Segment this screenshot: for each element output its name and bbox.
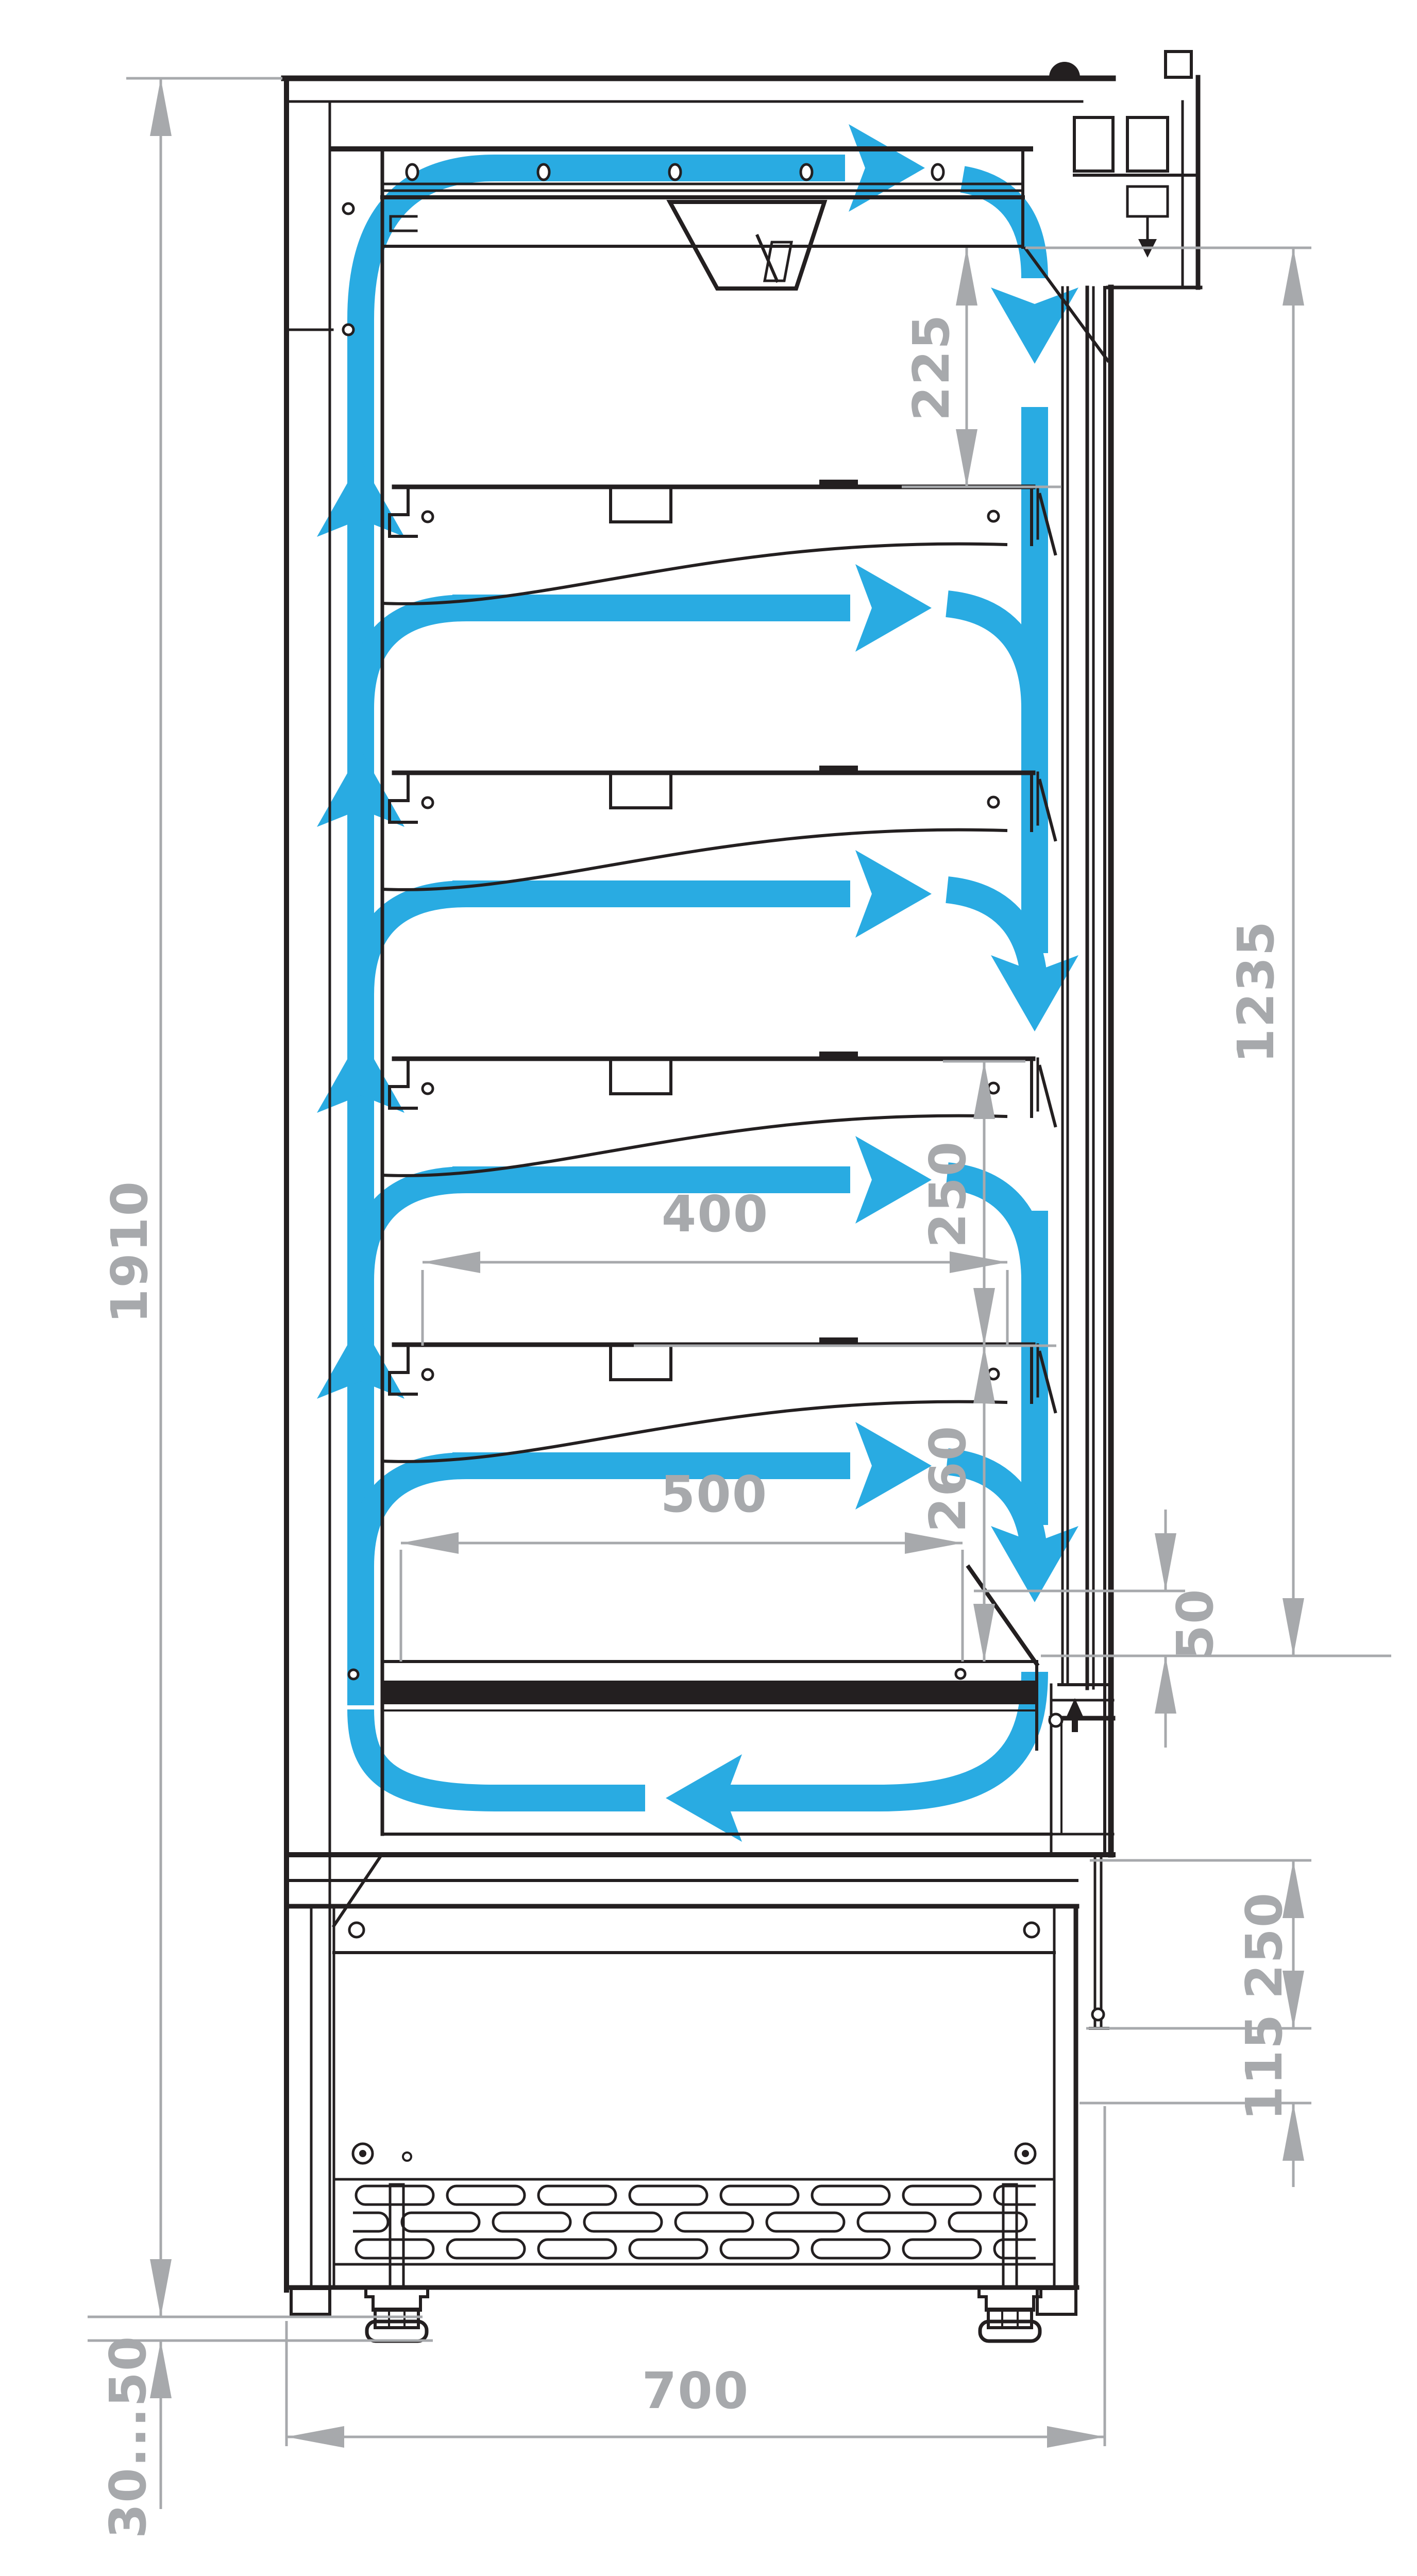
dim-label-foot-range: 30...50 — [99, 2335, 157, 2539]
perforation-hole — [407, 164, 418, 180]
dimension-annotations: 1910 30...50 225 1235 — [88, 78, 1391, 2538]
display-cabinet-cross-section-diagram: 1910 30...50 225 1235 — [0, 0, 1417, 2576]
perforation-hole — [801, 164, 812, 180]
dim-deck-clearance: 260 — [919, 1346, 995, 1662]
shelf-airflow-2 — [361, 850, 1035, 994]
price-tag — [1040, 1066, 1055, 1126]
dim-label-top-clearance: 225 — [902, 314, 960, 421]
ventilation-grille — [353, 2183, 1036, 2263]
dim-compartment-height: 250 — [1086, 1860, 1311, 2028]
air-curtain-arrow-top — [991, 287, 1078, 364]
dim-label-shelf-depth: 400 — [662, 1185, 769, 1243]
foot-bracket — [979, 2289, 1041, 2310]
dim-top-clearance: 225 — [902, 248, 1311, 487]
perforation-hole — [932, 164, 943, 180]
corner-brace — [334, 1857, 380, 1926]
dim-label-shelf-spacing: 250 — [919, 1141, 977, 1248]
glass-door — [1049, 52, 1201, 2028]
foot-nut — [375, 2309, 418, 2328]
dim-air-curtain-drop: 1235 — [1227, 248, 1304, 1656]
shelf-1 — [382, 480, 1055, 604]
return-loop-left — [361, 1709, 645, 1798]
airflow-arrows — [317, 124, 1078, 1842]
panel-screw — [349, 1923, 364, 1937]
shelf-clip — [611, 776, 671, 808]
foot-nut — [988, 2309, 1032, 2328]
perforation-hole — [538, 164, 549, 180]
shelf-clip — [611, 1062, 671, 1094]
liner-screw — [343, 204, 353, 214]
shelf-airflow-1 — [361, 564, 1035, 708]
corner-glide — [1037, 2289, 1076, 2314]
dim-label-deck-clearance: 260 — [919, 1425, 977, 1532]
perforation-hole — [669, 164, 681, 180]
machine-compartment — [286, 1906, 1077, 2314]
foot-bracket — [366, 2289, 428, 2310]
dim-label-compartment-height: 250 — [1235, 1892, 1293, 1999]
dim-label-air-curtain-drop: 1235 — [1227, 920, 1285, 1063]
door-top-hinge — [1049, 52, 1201, 287]
base-frame — [286, 1834, 1113, 1926]
bottom-deck — [349, 1567, 1037, 1749]
shelf-clip — [611, 490, 671, 522]
dim-label-deck-depth: 500 — [661, 1465, 768, 1523]
dim-label-overall-height: 1910 — [100, 1180, 159, 1324]
liner-screw — [343, 325, 353, 335]
shelf-2 — [382, 766, 1055, 890]
dim-label-overall-depth: 700 — [642, 2362, 749, 2420]
dim-plinth-height: 115 — [1079, 2013, 1311, 2187]
dim-label-plinth-height: 115 — [1235, 2013, 1293, 2121]
panel-screw — [1024, 1923, 1039, 1937]
door-glazing — [1062, 287, 1111, 1855]
dim-label-deck-edge-gap: 50 — [1166, 1588, 1224, 1660]
shelf-clip — [611, 1348, 671, 1380]
corner-glide — [291, 2289, 330, 2314]
